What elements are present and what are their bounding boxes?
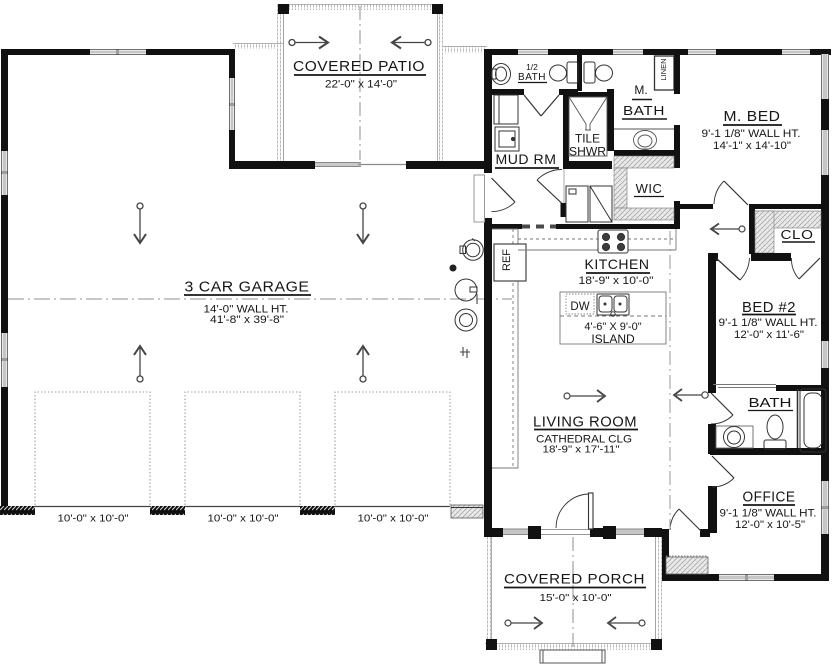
svg-text:18'-9" x 17'-11": 18'-9" x 17'-11" <box>543 444 620 456</box>
svg-text:OFFICE: OFFICE <box>743 490 796 506</box>
svg-text:LIVING ROOM: LIVING ROOM <box>533 414 637 431</box>
svg-text:ISLAND: ISLAND <box>591 332 635 346</box>
svg-text:3 CAR GARAGE: 3 CAR GARAGE <box>185 279 310 296</box>
svg-text:18'-9" x 10'-0": 18'-9" x 10'-0" <box>579 275 654 287</box>
svg-text:SHWR: SHWR <box>569 147 606 159</box>
svg-text:WIC: WIC <box>636 181 663 196</box>
svg-text:TILE: TILE <box>575 134 600 146</box>
svg-text:COVERED PATIO: COVERED PATIO <box>293 59 425 75</box>
svg-text:10'-0" x 10'-0": 10'-0" x 10'-0" <box>58 513 129 525</box>
svg-text:BATH: BATH <box>749 396 792 410</box>
svg-text:BATH: BATH <box>623 103 665 118</box>
svg-text:REF: REF <box>501 249 513 271</box>
svg-text:BED #2: BED #2 <box>742 300 796 316</box>
svg-text:12'-0" x 10'-5": 12'-0" x 10'-5" <box>735 519 805 531</box>
svg-text:9'-1 1/8" WALL HT.: 9'-1 1/8" WALL HT. <box>720 508 817 520</box>
svg-text:9'-1 1/8" WALL HT.: 9'-1 1/8" WALL HT. <box>719 317 818 329</box>
svg-text:M.: M. <box>634 83 647 97</box>
svg-text:LINEN: LINEN <box>659 58 668 80</box>
svg-text:M. BED: M. BED <box>724 109 781 125</box>
svg-text:10'-0" x 10'-0": 10'-0" x 10'-0" <box>208 513 279 525</box>
svg-text:COVERED PORCH: COVERED PORCH <box>504 571 645 587</box>
svg-text:BATH: BATH <box>518 72 546 83</box>
svg-text:DW: DW <box>570 301 589 313</box>
svg-text:12'-0" x 11'-6": 12'-0" x 11'-6" <box>734 329 804 341</box>
svg-text:MUD RM: MUD RM <box>496 152 557 167</box>
svg-text:41'-8" x 39'-8": 41'-8" x 39'-8" <box>210 314 284 326</box>
svg-text:15'-0" x 10'-0": 15'-0" x 10'-0" <box>540 592 612 604</box>
svg-text:10'-0" x 10'-0": 10'-0" x 10'-0" <box>358 513 429 525</box>
svg-text:22'-0" x 14'-0": 22'-0" x 14'-0" <box>325 79 397 91</box>
svg-text:1/2: 1/2 <box>526 62 538 72</box>
svg-text:KITCHEN: KITCHEN <box>585 256 650 272</box>
svg-text:14'-1" x 14'-10": 14'-1" x 14'-10" <box>713 140 791 152</box>
svg-text:CLO: CLO <box>781 227 814 242</box>
svg-text:9'-1 1/8" WALL HT.: 9'-1 1/8" WALL HT. <box>702 128 801 140</box>
